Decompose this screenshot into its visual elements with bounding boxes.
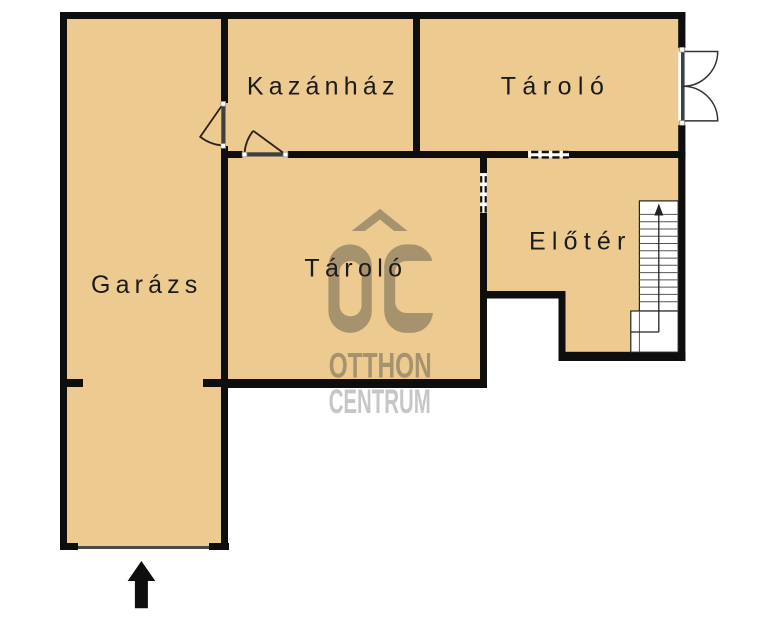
svg-text:Garázs: Garázs: [91, 271, 202, 299]
svg-text:Tároló: Tároló: [304, 255, 407, 283]
svg-text:Előtér: Előtér: [529, 228, 632, 256]
svg-text:Kazánház: Kazánház: [247, 73, 400, 101]
svg-text:Tároló: Tároló: [501, 73, 611, 101]
svg-text:CENTRUM: CENTRUM: [329, 383, 431, 421]
